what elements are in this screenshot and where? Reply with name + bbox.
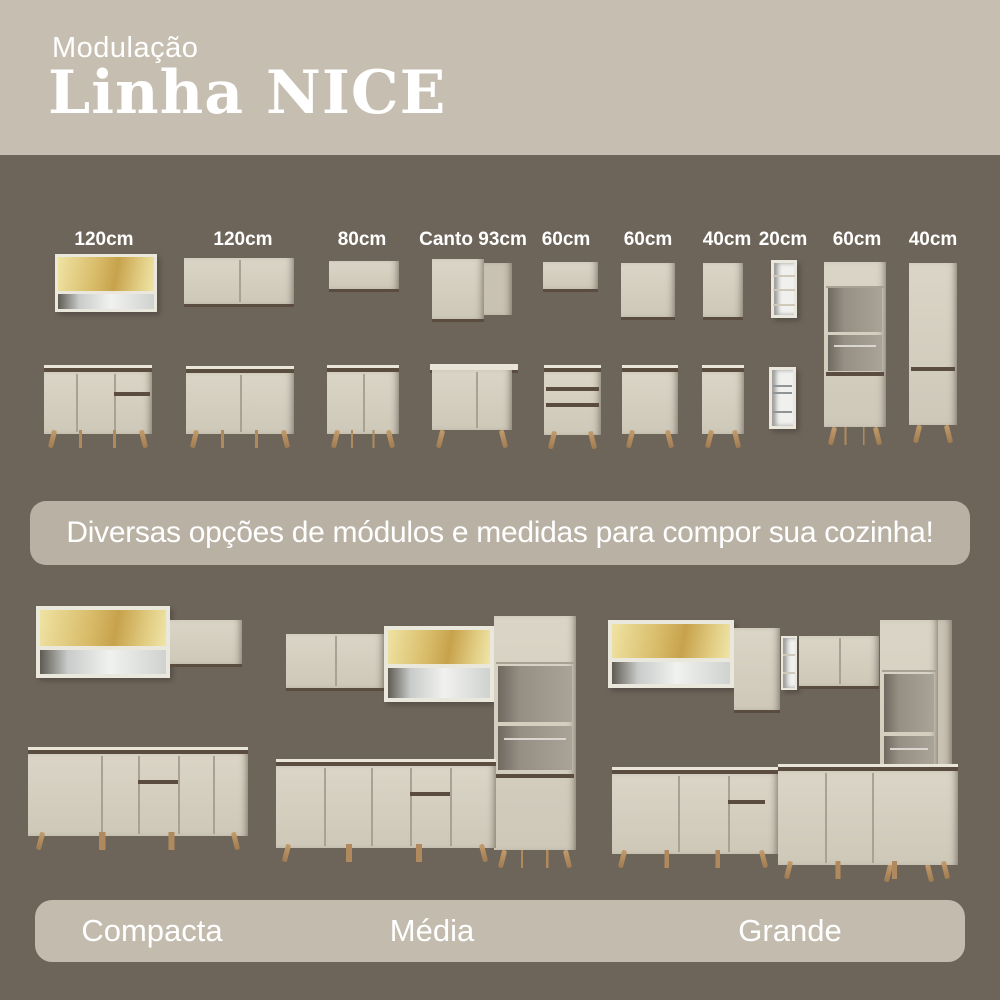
banner-text: Diversas opções de módulos e medidas par… <box>66 516 933 550</box>
glass-wall-cabinet <box>608 620 734 688</box>
door-gap <box>410 768 412 846</box>
shelf-line <box>773 289 795 291</box>
module-label-80: 80cm <box>338 229 387 251</box>
size-bar: Compacta Média Grande <box>35 900 965 962</box>
open-niche-column <box>781 636 797 690</box>
door-gap <box>911 367 955 371</box>
door-gap <box>138 756 140 834</box>
drawer-gap <box>114 392 150 396</box>
oven-tower <box>494 616 576 850</box>
wall-cabinet-2-doors <box>799 636 879 689</box>
door-gap <box>101 756 103 834</box>
drawer-gap <box>546 387 599 391</box>
amber-glass-doors <box>40 610 166 646</box>
leg-set <box>436 430 508 448</box>
module-label-40b: 40cm <box>909 229 958 251</box>
drawer-gap <box>410 792 450 796</box>
open-shelf <box>58 294 154 309</box>
counter-trim <box>826 372 884 376</box>
product-infographic: Modulação Linha NICE 120cm 120cm 80cm Ca… <box>0 0 1000 1000</box>
header: Modulação Linha NICE <box>0 0 1000 155</box>
counter-120 <box>44 368 152 434</box>
module-label-120: 120cm <box>74 229 133 251</box>
module-label-120b: 120cm <box>213 229 272 251</box>
tower-niche <box>498 666 572 722</box>
door-gap <box>114 374 116 432</box>
leg-set <box>48 430 148 448</box>
pantry-tower <box>909 263 957 425</box>
wall-cabinet-1-door <box>170 620 242 667</box>
glass-wall-cabinet <box>36 606 170 678</box>
door-gap <box>178 756 180 834</box>
open-shelf <box>388 668 490 698</box>
corner-wall-cabinet <box>734 628 780 713</box>
wall-cabinet-1-door <box>621 263 675 320</box>
door-gap <box>371 768 373 846</box>
page-title: Linha NICE <box>48 58 446 128</box>
amber-glass-doors <box>58 257 154 291</box>
door-gap <box>825 773 827 863</box>
leg-set <box>913 425 953 443</box>
shelf-line <box>783 672 795 674</box>
corner-counter-cabinet <box>432 370 512 430</box>
drawer-gap <box>138 780 178 784</box>
drawer-gap <box>546 403 599 407</box>
counter-run-right <box>778 767 958 865</box>
counter-run <box>276 762 496 848</box>
drawer-gap <box>728 800 765 804</box>
door-gap <box>882 670 936 672</box>
niche-rail <box>504 738 566 740</box>
wire-rack <box>773 392 792 394</box>
niche-rail <box>834 345 876 347</box>
module-label-40: 40cm <box>703 229 752 251</box>
niche-rail <box>890 748 928 750</box>
wall-cabinet-flip-door <box>543 262 598 292</box>
leg-set <box>190 430 290 448</box>
niche-interior <box>783 638 795 688</box>
open-shelf <box>40 650 166 674</box>
door-gap <box>872 773 874 863</box>
door-gap <box>239 260 241 302</box>
tower-niche <box>828 288 882 332</box>
door-gap <box>728 776 730 852</box>
leg-set <box>548 431 597 449</box>
kitchen-media <box>272 610 587 900</box>
door-gap <box>450 768 452 846</box>
leg-set <box>784 861 950 879</box>
door-gap <box>678 776 680 852</box>
glass-wall-cabinet <box>384 626 494 702</box>
door-gap <box>476 372 478 428</box>
open-shelf <box>612 662 730 684</box>
shelf-line <box>773 304 795 306</box>
module-label-canto93: Canto 93cm <box>419 229 527 251</box>
corner-wall-side-panel <box>484 263 512 315</box>
wire-rack <box>773 411 792 413</box>
wall-cabinet-flip-door <box>329 261 399 292</box>
counter-3-drawers <box>544 368 601 435</box>
module-label-60c: 60cm <box>833 229 882 251</box>
size-label-compacta: Compacta <box>81 913 222 949</box>
rack-interior <box>772 370 793 426</box>
counter-trim <box>496 774 574 778</box>
shelf-line <box>773 275 795 277</box>
banner: Diversas opções de módulos e medidas par… <box>30 501 970 565</box>
glass-wall-cabinet <box>55 254 157 312</box>
door-gap <box>496 662 574 664</box>
amber-glass-doors <box>388 630 490 664</box>
kitchen-compacta <box>28 598 258 888</box>
door-gap <box>240 375 242 432</box>
counter-run-left <box>612 770 778 854</box>
door-gap <box>76 374 78 432</box>
door-gap <box>839 638 841 684</box>
counter-2-doors <box>327 368 399 434</box>
wire-rack <box>773 385 792 387</box>
door-gap <box>335 636 337 686</box>
door-gap <box>363 374 365 432</box>
size-label-grande: Grande <box>738 913 841 949</box>
leg-set <box>498 850 572 868</box>
wall-cabinet-2-doors <box>184 258 294 307</box>
module-label-20: 20cm <box>759 229 808 251</box>
corner-wall-cabinet-door <box>432 259 484 322</box>
amber-glass-doors <box>612 624 730 658</box>
oven-tower <box>824 262 886 427</box>
counter-1-door <box>702 368 744 434</box>
leg-set <box>618 850 768 868</box>
leg-set <box>626 430 674 448</box>
module-label-60b: 60cm <box>624 229 673 251</box>
module-label-60: 60cm <box>542 229 591 251</box>
open-niche-column <box>771 260 797 318</box>
tower-niche <box>828 335 882 371</box>
leg-set <box>282 844 488 862</box>
wall-cabinet-1-door <box>703 263 743 320</box>
kitchen-grande <box>600 612 995 897</box>
shelf-line <box>783 654 795 656</box>
tower-niche <box>884 674 934 732</box>
bottle-rack-column <box>769 367 796 429</box>
counter-1-door <box>622 368 678 434</box>
wall-cabinet-2-doors <box>286 634 384 691</box>
door-gap <box>324 768 326 846</box>
leg-set <box>331 430 395 448</box>
leg-set <box>36 832 240 850</box>
leg-set <box>828 427 882 445</box>
door-gap <box>213 756 215 834</box>
counter-run <box>28 750 248 836</box>
leg-set <box>705 430 741 448</box>
size-label-media: Média <box>390 913 474 949</box>
tower-niche <box>498 726 572 770</box>
counter-2-doors <box>186 369 294 434</box>
